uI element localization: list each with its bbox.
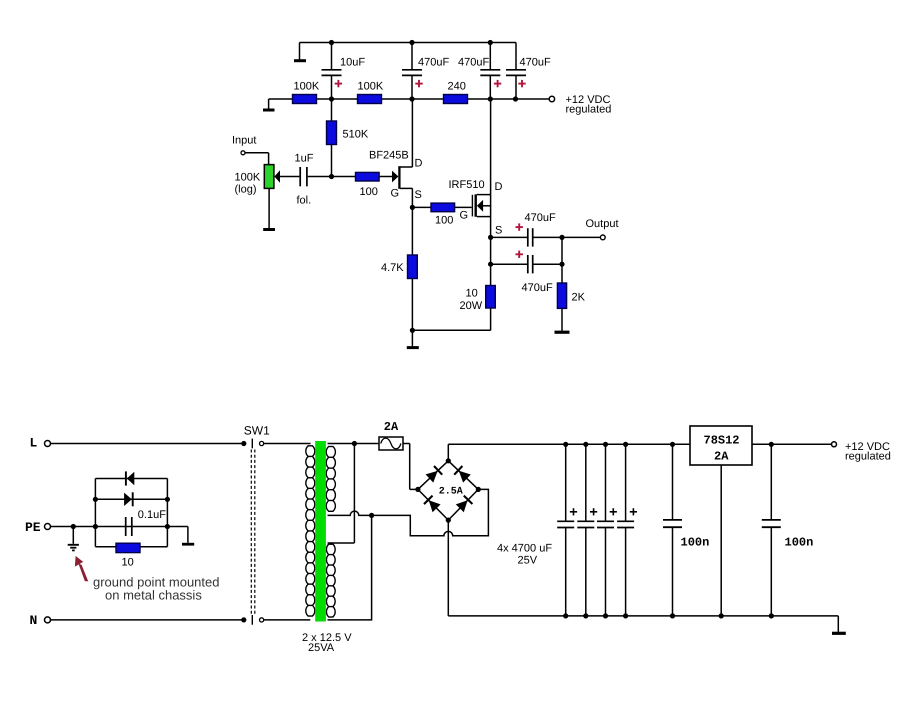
svg-text:10: 10 <box>466 288 478 300</box>
svg-text:10uF: 10uF <box>340 57 365 69</box>
svg-text:L: L <box>30 435 38 450</box>
svg-text:1uF: 1uF <box>295 153 314 165</box>
svg-text:S: S <box>415 189 422 201</box>
svg-text:PE: PE <box>25 520 41 535</box>
svg-text:240: 240 <box>448 81 466 93</box>
svg-text:on metal chassis: on metal chassis <box>105 588 202 603</box>
svg-text:100n: 100n <box>681 536 710 550</box>
svg-text:100K: 100K <box>358 81 384 93</box>
svg-text:D: D <box>495 181 503 193</box>
svg-text:10: 10 <box>122 557 134 569</box>
svg-text:100K: 100K <box>235 172 261 184</box>
svg-text:2A: 2A <box>384 420 399 434</box>
svg-text:BF245B: BF245B <box>369 150 409 162</box>
svg-text:25V: 25V <box>518 555 538 567</box>
svg-text:78S12: 78S12 <box>704 434 740 448</box>
svg-text:SW1: SW1 <box>244 423 270 437</box>
svg-text:4x 4700 uF: 4x 4700 uF <box>497 543 552 555</box>
svg-text:0.1uF: 0.1uF <box>138 509 166 521</box>
svg-text:regulated: regulated <box>845 451 891 463</box>
svg-text:IRF510: IRF510 <box>449 179 485 191</box>
svg-text:regulated: regulated <box>566 104 612 116</box>
svg-text:G: G <box>460 210 469 222</box>
svg-text:470uF: 470uF <box>458 57 489 69</box>
svg-text:100n: 100n <box>785 536 814 550</box>
svg-text:20W: 20W <box>460 300 483 312</box>
svg-text:100: 100 <box>360 186 378 198</box>
svg-text:25VA: 25VA <box>308 642 335 654</box>
svg-text:Output: Output <box>586 218 619 230</box>
svg-text:100: 100 <box>435 215 453 227</box>
svg-text:470uF: 470uF <box>525 212 556 224</box>
svg-text:100K: 100K <box>294 81 320 93</box>
svg-text:(log): (log) <box>235 184 257 196</box>
svg-text:510K: 510K <box>343 129 369 141</box>
svg-text:2.5A: 2.5A <box>439 487 463 498</box>
svg-text:470uF: 470uF <box>520 57 551 69</box>
svg-text:S: S <box>495 225 502 237</box>
svg-text:D: D <box>415 158 423 170</box>
svg-text:N: N <box>30 613 38 628</box>
svg-text:G: G <box>391 188 400 200</box>
svg-text:2A: 2A <box>714 449 729 463</box>
svg-text:470uF: 470uF <box>418 57 449 69</box>
svg-text:470uF: 470uF <box>522 282 553 294</box>
svg-text:4.7K: 4.7K <box>381 262 404 274</box>
svg-text:fol.: fol. <box>297 195 312 207</box>
svg-text:Input: Input <box>232 135 256 147</box>
svg-text:2K: 2K <box>572 292 586 304</box>
